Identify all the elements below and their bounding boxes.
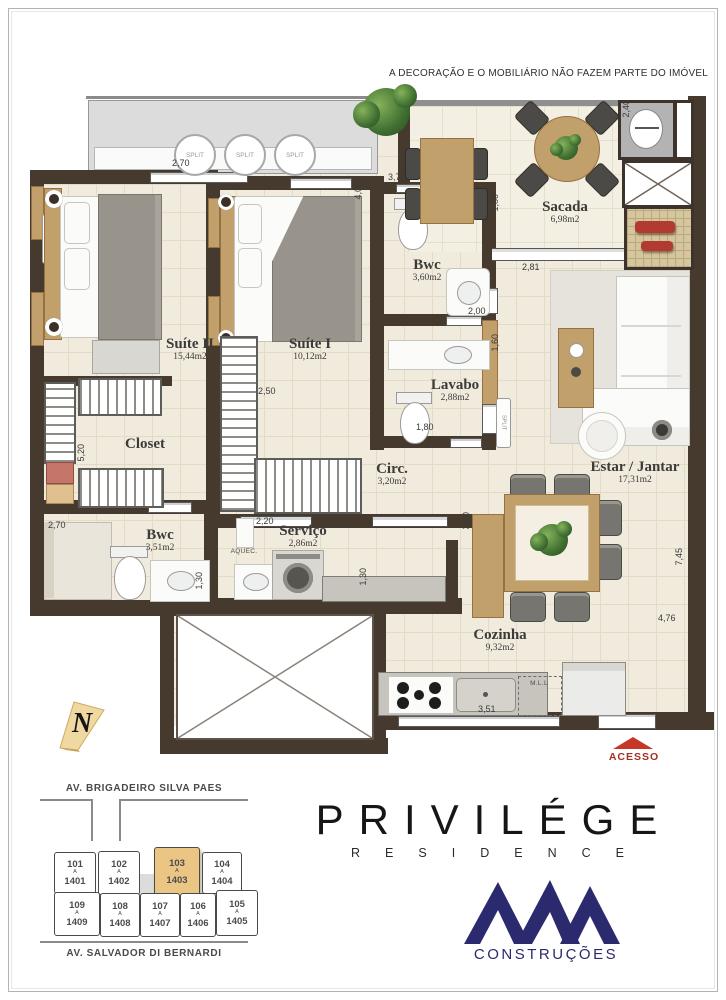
dimension: 1,80 (490, 194, 500, 212)
duct-shaft (622, 160, 694, 208)
shaft-x-icon (625, 163, 691, 205)
tub-icon (629, 109, 663, 149)
dimension: 2,70 (172, 158, 190, 168)
bedside-lamp-icon (218, 194, 234, 210)
unit-sep: A (175, 869, 179, 875)
unit-102: 102A1402 (98, 851, 140, 895)
room-label-lavabo: Lavabo2,88m2 (410, 378, 500, 404)
shaft-void (176, 614, 374, 740)
unit-number: 1407 (149, 919, 170, 929)
unit-sep: A (73, 870, 77, 876)
dimension: 2,81 (522, 262, 540, 272)
street-line (40, 941, 248, 943)
wall (370, 176, 384, 450)
washer-controls (276, 554, 320, 559)
room-area: 6,98m2 (520, 216, 610, 226)
unit-107: 107A1407 (140, 893, 180, 937)
acesso-label: ACESSO (598, 751, 670, 763)
burner-icon (397, 682, 409, 694)
unit-number: 1404 (211, 877, 232, 887)
wall (446, 540, 458, 614)
unit-sep: A (158, 912, 162, 918)
room-label-suite1: Suíte I10,12m2 (255, 337, 365, 363)
room-name: Cozinha (450, 628, 550, 644)
balcony-table (420, 138, 474, 224)
shaft-slot (674, 100, 694, 160)
dimension: 1,60 (490, 334, 500, 352)
split-ac-indoor: SPLIT (496, 398, 511, 448)
acesso-arrow-icon (613, 737, 653, 749)
room-name: Suíte II (130, 337, 250, 353)
unit-number: 1403 (166, 876, 187, 886)
window (290, 178, 352, 189)
unit-number: 1405 (226, 917, 247, 927)
unit-number: 107 (152, 902, 168, 912)
wall (160, 598, 174, 754)
floor-plan: SPLIT SPLIT SPLIT SPLIT SPLIT SPLIT (0, 0, 726, 770)
room-area: 9,32m2 (450, 644, 550, 654)
room-label-servico: Serviço2,86m2 (248, 524, 358, 550)
room-name: Lavabo (410, 378, 500, 394)
grill-food (641, 241, 673, 251)
dimension: 1,80 (416, 422, 434, 432)
armchair (578, 412, 626, 460)
room-area: 3,51m2 (118, 544, 202, 554)
shower-drain-icon (457, 281, 481, 305)
service-counter (322, 576, 446, 602)
storage-box (46, 462, 74, 484)
site-plan: AV. BRIGADEIRO SILVA PAES 101A1401 102A1… (0, 770, 280, 970)
room-label-closet: Closet (100, 437, 190, 453)
privilege-logo: PRIVILÉGE (288, 796, 700, 844)
unit-number: 1409 (66, 918, 87, 928)
storage-box (46, 484, 74, 504)
unit-105: 105A1405 (216, 890, 258, 936)
dining-chair (554, 592, 590, 622)
room-label-sacada: Sacada6,98m2 (520, 200, 610, 226)
exterior-cutout (26, 94, 90, 172)
room-area: 3,60m2 (385, 274, 469, 284)
unit-109: 109A1409 (54, 892, 100, 936)
room-name: Serviço (248, 524, 358, 540)
street-bottom-label: AV. SALVADOR DI BERNARDI (40, 948, 248, 959)
dimension: 3,76 (388, 172, 406, 182)
room-label-circ: Circ.3,20m2 (352, 462, 432, 488)
decor-icon (569, 343, 584, 358)
vanity-counter (388, 340, 490, 370)
room-name: Bwc (118, 528, 202, 544)
dimension: 4,76 (658, 613, 676, 623)
room-name: Suíte I (255, 337, 365, 353)
room-label-bwc2: Bwc3,51m2 (118, 528, 202, 554)
sliding-door (372, 516, 448, 527)
am-logo-text: CONSTRUÇÕES (448, 946, 644, 963)
decor-icon (571, 367, 581, 377)
balcony-chair (405, 148, 421, 180)
sofa-cushion-line (621, 375, 681, 377)
void-x-icon (178, 616, 372, 738)
unit-number: 1401 (64, 877, 85, 887)
split-ac-unit: SPLIT (174, 134, 216, 176)
pillow (64, 248, 90, 290)
burner-icon (397, 697, 409, 709)
bed-duvet (98, 194, 162, 340)
washer-drum-icon (283, 563, 313, 593)
floorplan-page: A DECORAÇÃO E O MOBILIÁRIO NÃO FAZEM PAR… (0, 0, 726, 1000)
dishwasher-space: M.L.L (518, 676, 562, 716)
closet-rack (254, 458, 362, 514)
grill-food (635, 221, 675, 233)
window (398, 716, 560, 727)
closet-rack (78, 378, 162, 416)
dishwasher-label: M.L.L (519, 680, 559, 687)
unit-104: 104A1404 (202, 852, 242, 894)
balcony-chair (472, 188, 488, 220)
unit-number: 1402 (108, 877, 129, 887)
north-letter: N (72, 708, 92, 740)
unit-number: 102 (111, 860, 127, 870)
unit-sep: A (220, 870, 224, 876)
room-area: 17,31m2 (575, 476, 695, 486)
split-label: SPLIT (501, 415, 507, 430)
wood-wall-panel (31, 292, 44, 346)
street-line (120, 799, 248, 801)
bedside-lamp-icon (45, 190, 63, 208)
refrigerator (562, 662, 626, 716)
unit-sep: A (117, 870, 121, 876)
room-name: Estar / Jantar (575, 460, 695, 476)
residence-logo-sub: RESIDENCE (300, 846, 700, 860)
split-ac-unit: SPLIT (274, 134, 316, 176)
sink-basin (444, 346, 472, 364)
dimension: 2,00 (468, 306, 486, 316)
sink-basin (167, 571, 195, 591)
pillow (238, 204, 262, 244)
closet-rack (78, 468, 164, 508)
am-logo-icon (458, 876, 634, 946)
room-name: Sacada (520, 200, 610, 216)
unit-sep: A (118, 912, 122, 918)
burner-icon (414, 690, 424, 700)
washing-machine (272, 550, 324, 600)
dimension: 4,05 (353, 182, 363, 200)
unit-sep: A (235, 910, 239, 916)
unit-108: 108A1408 (100, 893, 140, 937)
door-opening (446, 316, 482, 326)
barbecue-grill (624, 206, 694, 270)
unit-number: 104 (214, 860, 230, 870)
floor-lamp-icon (652, 420, 672, 440)
burner-icon (429, 697, 441, 709)
dimension: 5,20 (76, 444, 86, 462)
unit-sep: A (75, 911, 79, 917)
shower-area (44, 522, 112, 600)
unit-106: 106A1406 (180, 893, 216, 937)
dimension: 1,30 (194, 572, 204, 590)
dimension: 3,20 (461, 512, 471, 530)
split-label: SPLIT (236, 152, 254, 159)
room-label-estar: Estar / Jantar17,31m2 (575, 460, 695, 486)
dimension: 2,70 (48, 520, 66, 530)
street-line (40, 799, 92, 801)
room-label-bwc1: Bwc3,60m2 (385, 258, 469, 284)
unit-101: 101A1401 (54, 852, 96, 894)
tub-basin (243, 573, 269, 591)
room-name: Closet (100, 437, 190, 453)
dimension: 7,45 (674, 548, 684, 566)
pillow (238, 248, 262, 288)
burner-icon (429, 682, 441, 694)
dimension: 2,20 (256, 516, 274, 526)
split-ac-unit: SPLIT (224, 134, 266, 176)
balcony-chair (472, 148, 488, 180)
room-name: Circ. (352, 462, 432, 478)
dimension: 3,51 (478, 704, 496, 714)
north-compass: N (56, 696, 110, 754)
unit-number: 109 (69, 901, 85, 911)
plant (362, 88, 410, 136)
unit-sep: A (196, 912, 200, 918)
room-label-cozinha: Cozinha9,32m2 (450, 628, 550, 654)
entry-door (598, 714, 656, 729)
dimension: 2,50 (258, 386, 276, 396)
sideboard (472, 514, 504, 618)
sofa-cushion-line (621, 325, 681, 327)
driveway-line (91, 799, 93, 841)
unit-103-highlighted: 103A1403 (154, 847, 200, 897)
unit-number: 1408 (109, 919, 130, 929)
side-table (558, 328, 594, 408)
room-name: Bwc (385, 258, 469, 274)
dimension: 2,40 (621, 100, 631, 118)
plant (554, 136, 578, 160)
unit-number: 106 (190, 902, 206, 912)
room-area: 2,88m2 (410, 394, 500, 404)
toilet (114, 556, 146, 600)
plant (536, 524, 568, 556)
unit-number: 105 (229, 900, 245, 910)
bedside-lamp-icon (45, 318, 63, 336)
room-area: 3,20m2 (352, 478, 432, 488)
room-area: 15,44m2 (130, 353, 250, 363)
cooktop (388, 676, 454, 714)
room-area: 2,86m2 (248, 540, 358, 550)
split-label: SPLIT (286, 152, 304, 159)
ledge-top-line (86, 96, 380, 99)
unit-number: 103 (169, 859, 185, 869)
tub-drain-line (635, 127, 659, 129)
unit-number: 108 (112, 902, 128, 912)
street-top-label: AV. BRIGADEIRO SILVA PAES (40, 783, 248, 794)
room-label-suite2: Suíte II15,44m2 (130, 337, 250, 363)
faucet-icon (483, 692, 488, 697)
room-area: 10,12m2 (255, 353, 365, 363)
dimension: 1,30 (358, 568, 368, 586)
unit-number: 1406 (187, 919, 208, 929)
dining-chair (510, 592, 546, 622)
closet-rack (44, 382, 76, 464)
unit-number: 101 (67, 860, 83, 870)
door-opening (450, 438, 482, 448)
driveway-line (119, 799, 121, 841)
pillow (64, 202, 90, 244)
balcony-chair (405, 188, 421, 220)
armchair-cushion (586, 420, 618, 452)
shower-bench (44, 522, 54, 598)
